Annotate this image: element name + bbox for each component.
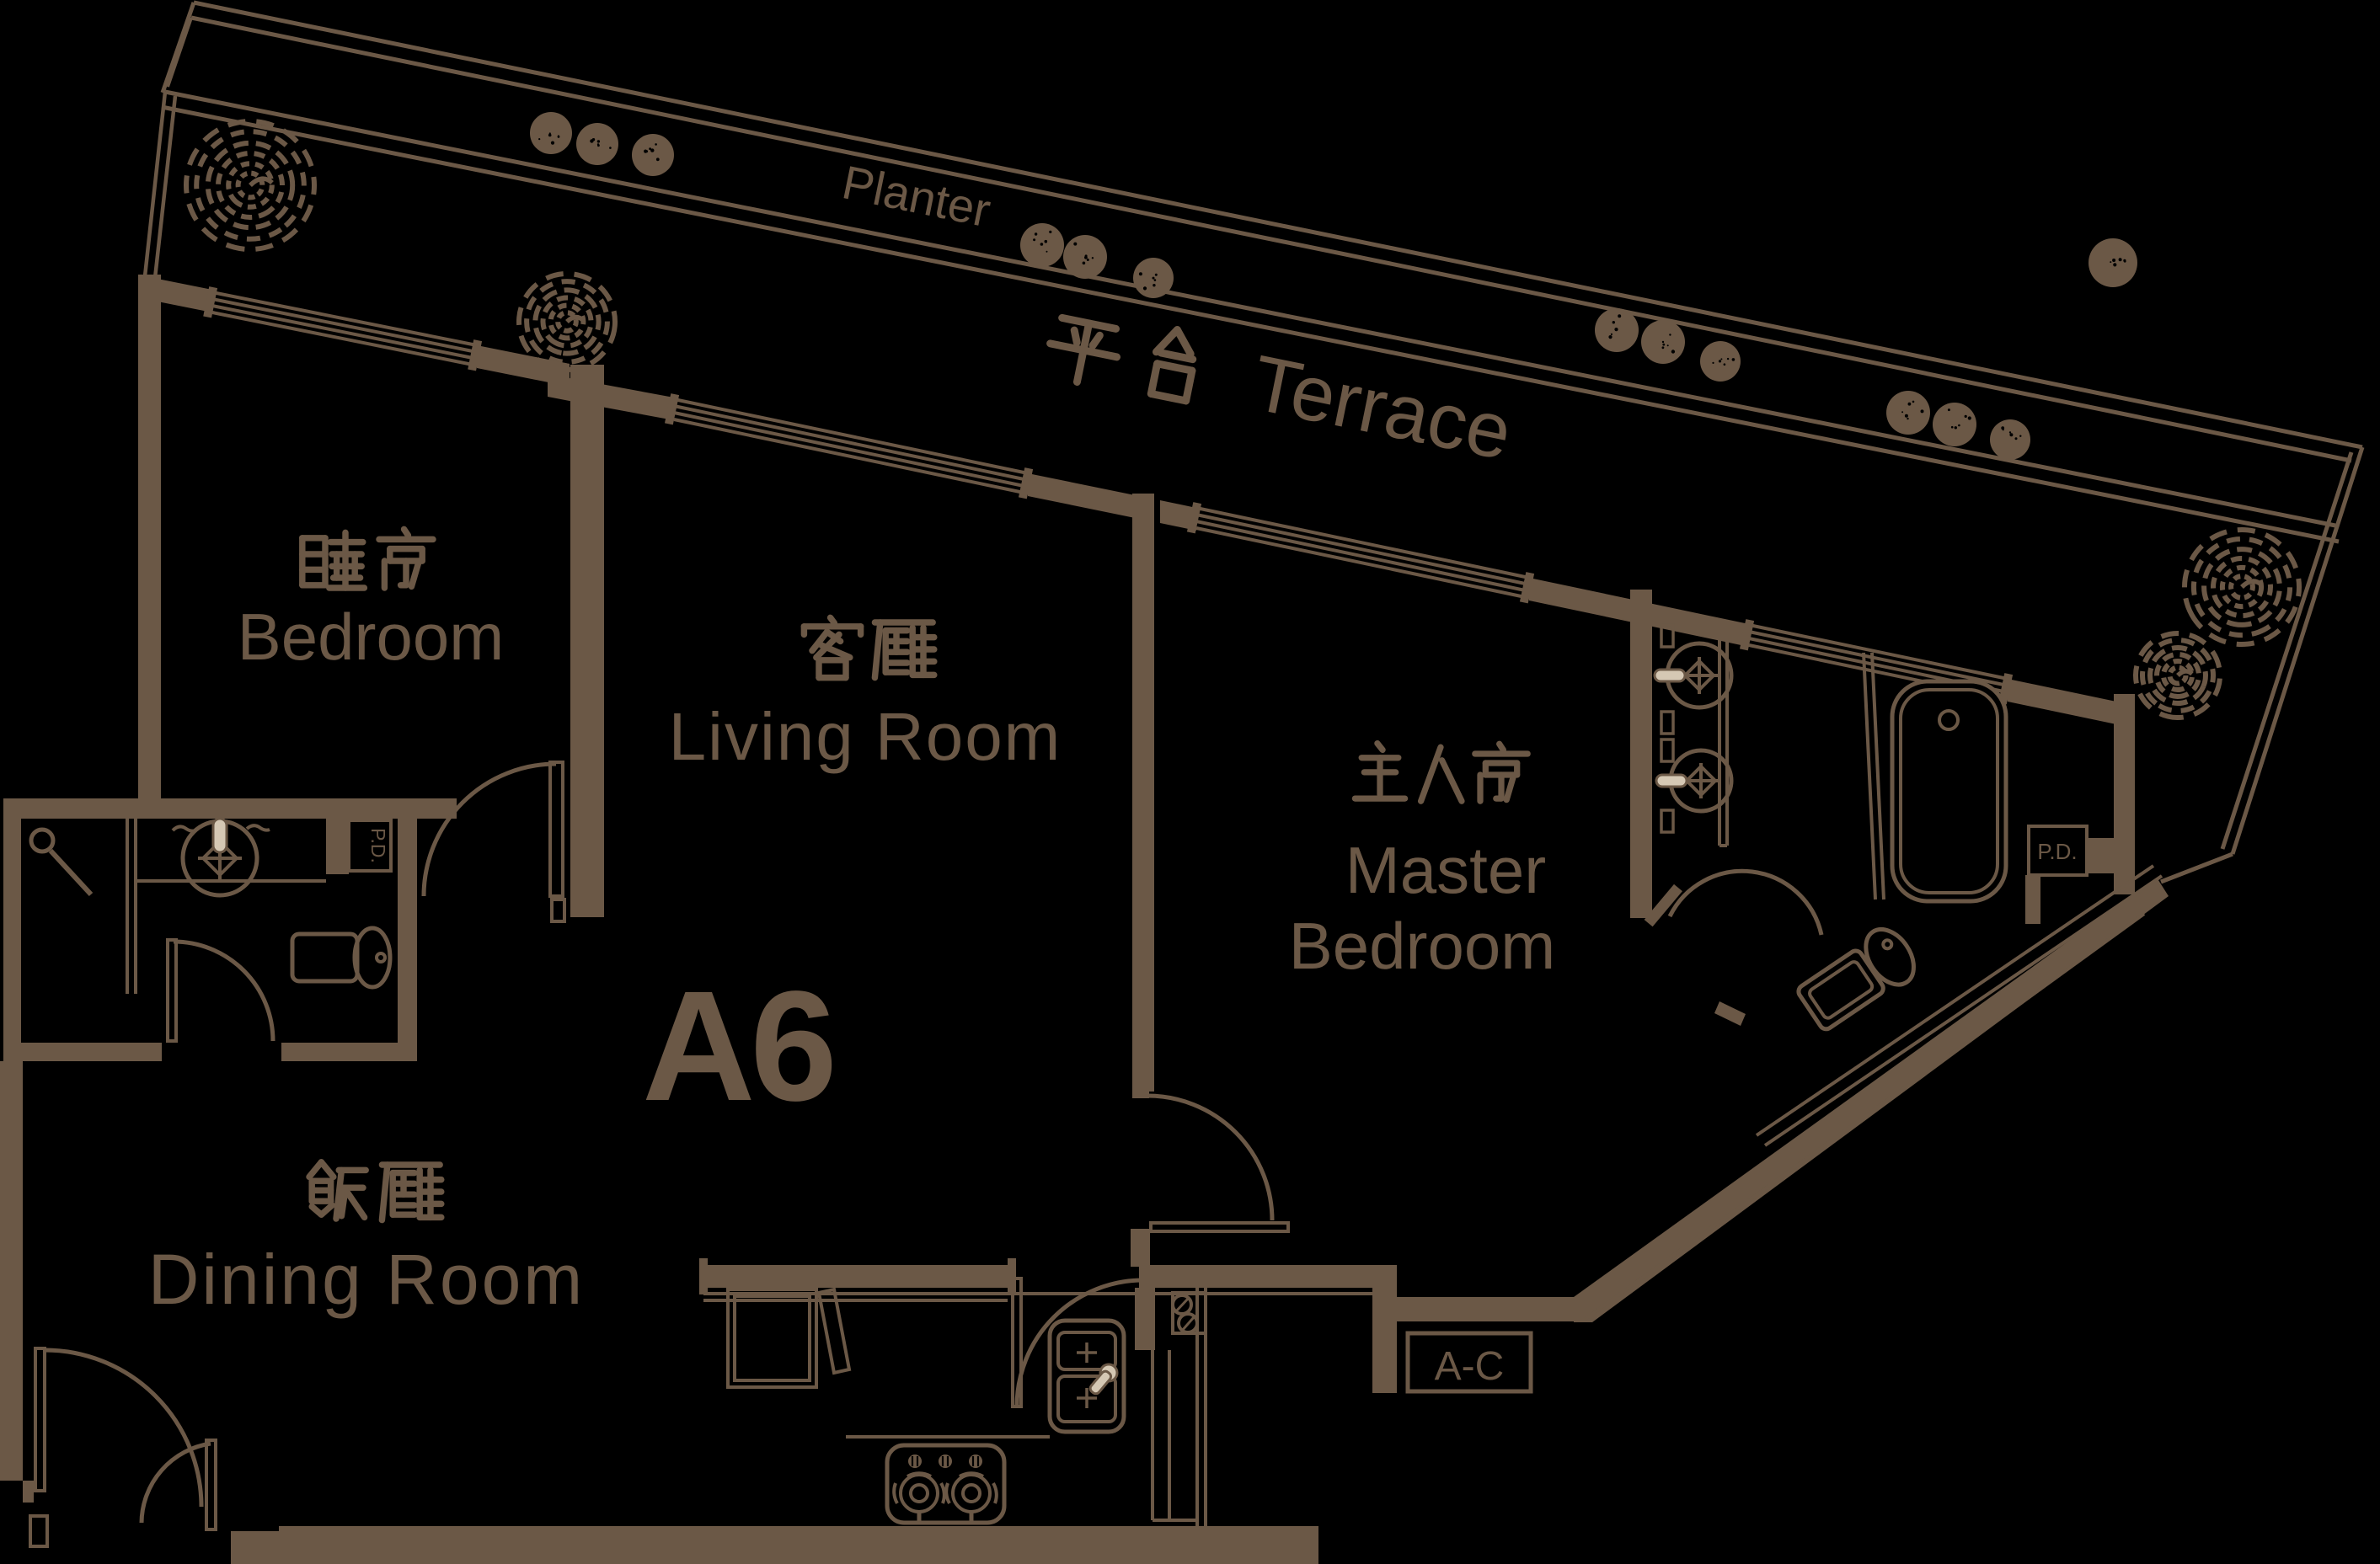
svg-text:A-C: A-C bbox=[1435, 1344, 1505, 1389]
svg-text:Living Room: Living Room bbox=[669, 699, 1062, 774]
svg-text:A6: A6 bbox=[642, 959, 832, 1134]
svg-text:P.D.: P.D. bbox=[2037, 839, 2077, 864]
svg-text:Master: Master bbox=[1345, 833, 1546, 907]
svg-text:Bedroom: Bedroom bbox=[238, 600, 505, 674]
svg-text:Dining Room: Dining Room bbox=[148, 1240, 586, 1319]
svg-text:P.D.: P.D. bbox=[367, 828, 389, 863]
svg-text:Bedroom: Bedroom bbox=[1289, 909, 1556, 983]
